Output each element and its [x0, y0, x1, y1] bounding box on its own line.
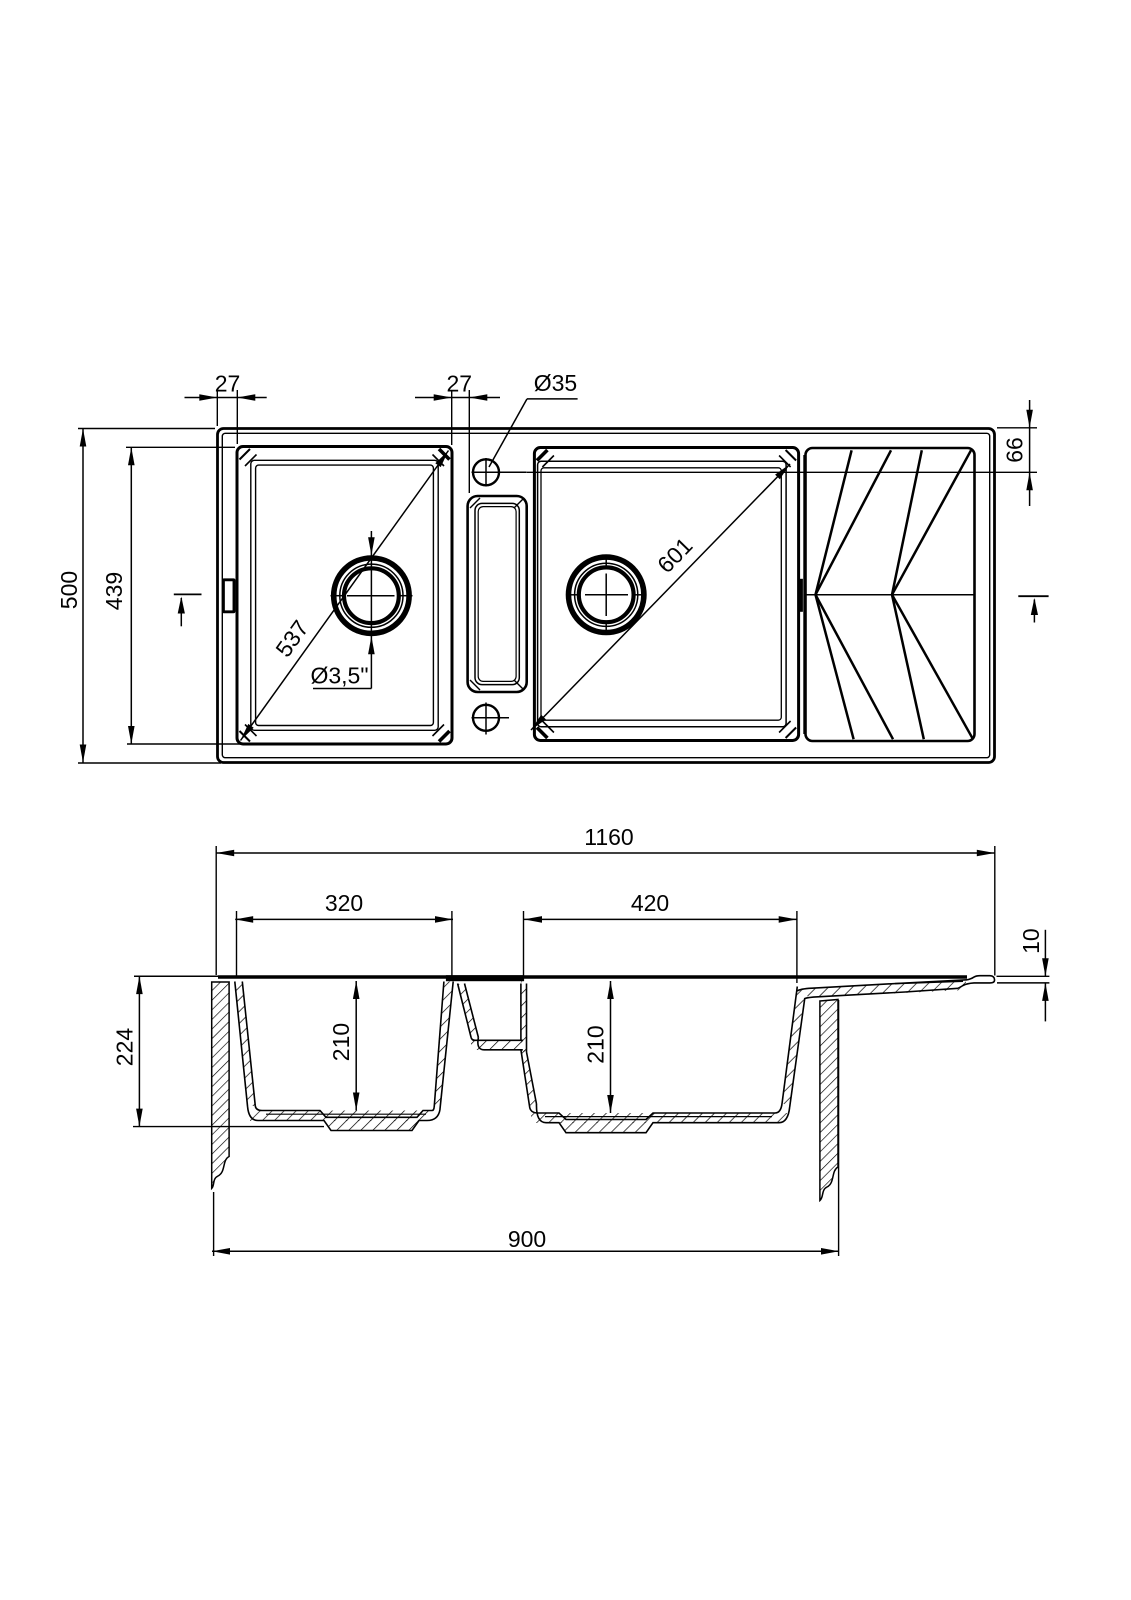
svg-text:420: 420: [631, 890, 669, 916]
svg-text:320: 320: [325, 890, 363, 916]
svg-text:439: 439: [101, 572, 127, 610]
svg-text:900: 900: [508, 1226, 546, 1252]
svg-text:224: 224: [112, 1028, 138, 1067]
svg-text:Ø3,5": Ø3,5": [310, 663, 368, 689]
svg-text:500: 500: [56, 571, 82, 609]
svg-text:66: 66: [1002, 437, 1028, 463]
svg-text:Ø35: Ø35: [534, 370, 577, 396]
svg-text:27: 27: [215, 371, 241, 397]
svg-text:10: 10: [1018, 928, 1044, 954]
svg-text:210: 210: [583, 1025, 609, 1063]
svg-text:27: 27: [447, 371, 473, 397]
svg-text:1160: 1160: [584, 824, 633, 850]
svg-text:210: 210: [328, 1023, 354, 1061]
